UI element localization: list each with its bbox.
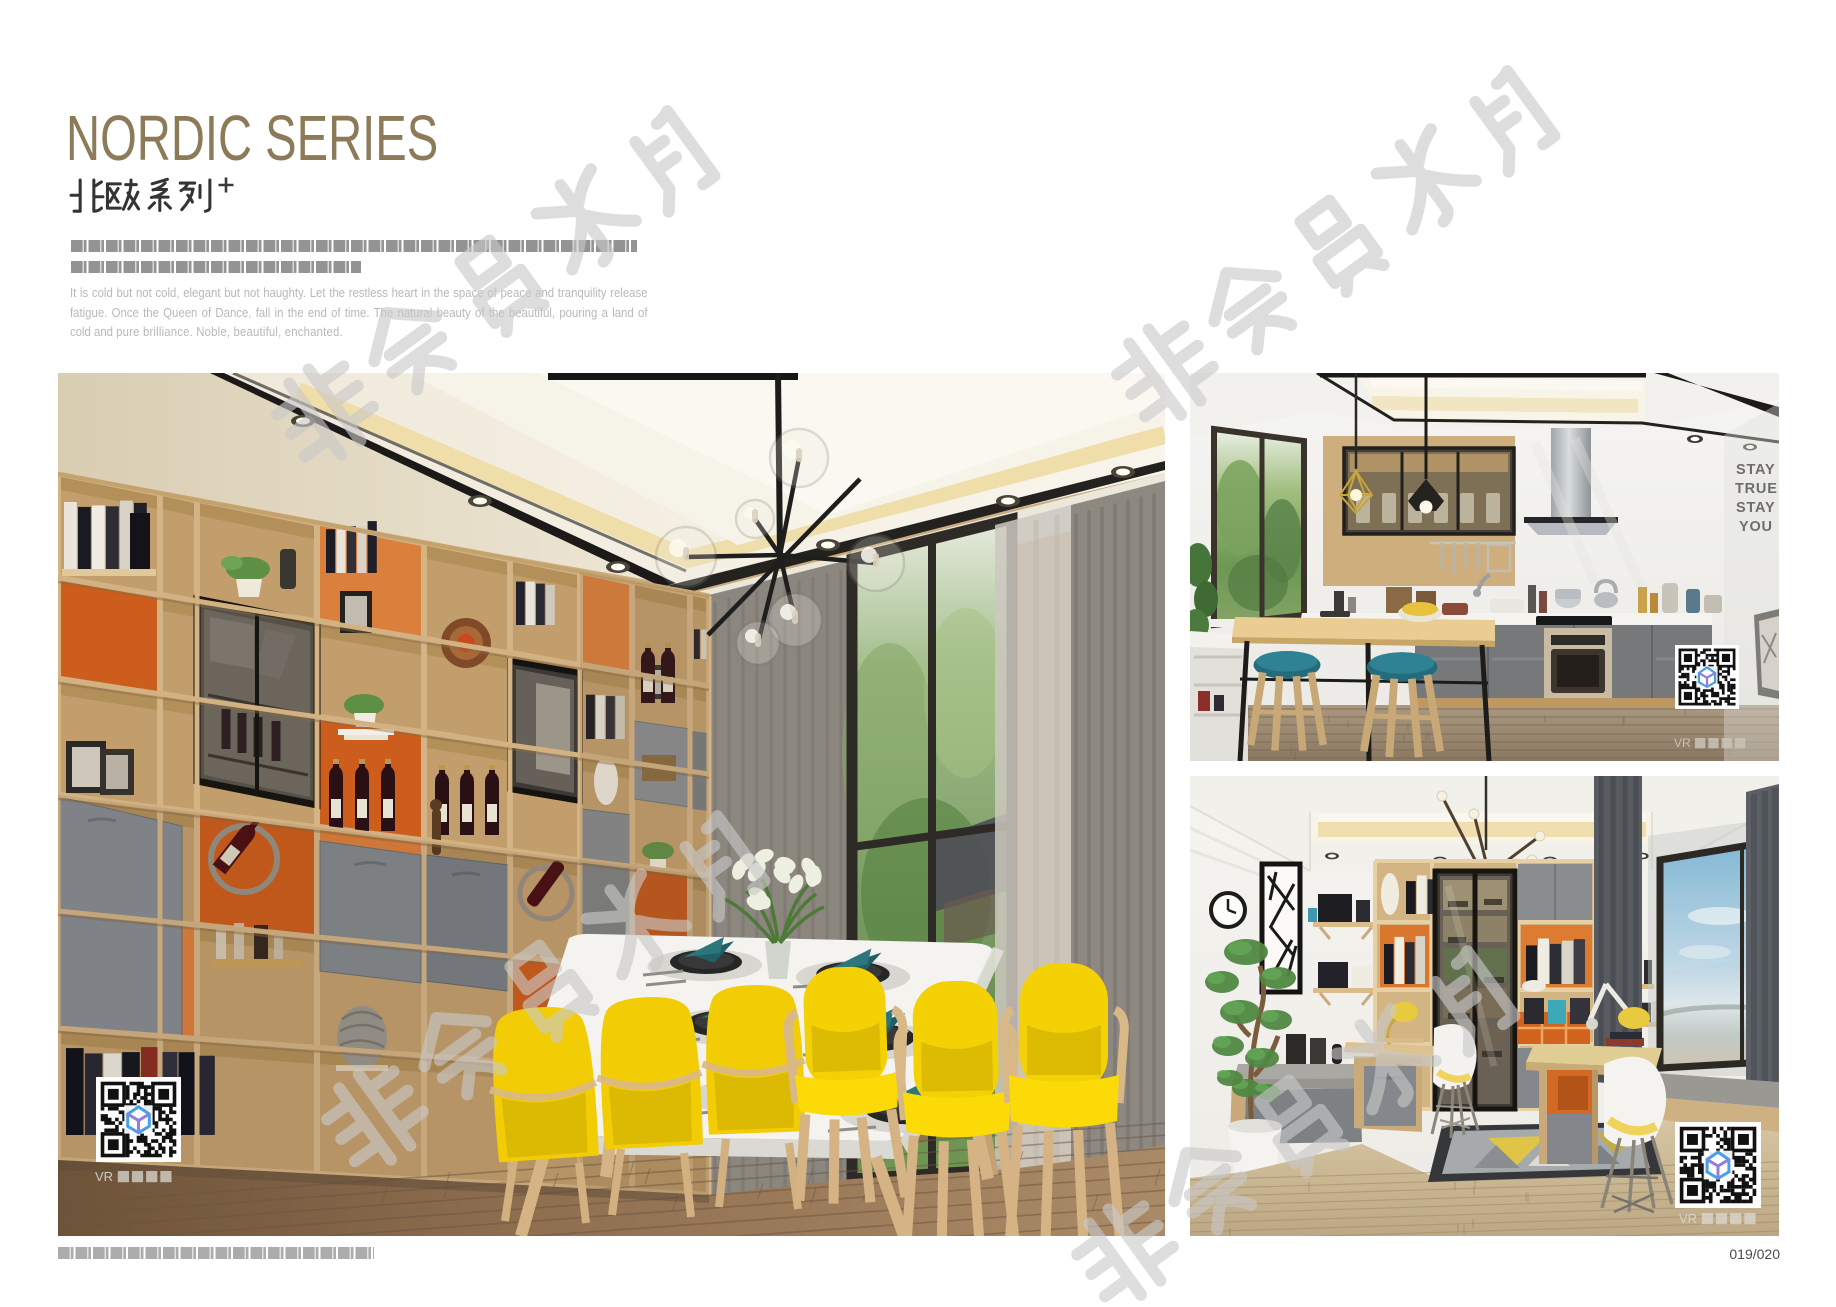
svg-text:VR: VR xyxy=(95,1169,113,1184)
svg-text:VR: VR xyxy=(1679,1211,1697,1226)
svg-text:VR: VR xyxy=(1674,736,1691,750)
